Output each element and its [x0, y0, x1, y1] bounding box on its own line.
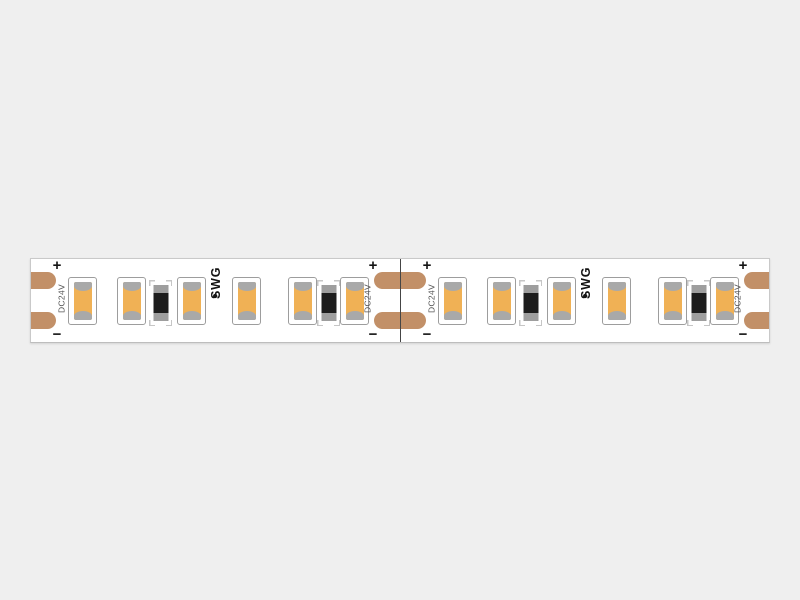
- led-electrode-top: [493, 282, 511, 291]
- voltage-label: DC24V: [733, 279, 744, 319]
- led-electrode-top: [553, 282, 571, 291]
- led-electrode-top: [608, 282, 626, 291]
- solder-pad-positive: [30, 272, 56, 289]
- minus-mark: −: [417, 328, 437, 342]
- led: [232, 277, 261, 325]
- led-strip: ●SWG●SWG+−DC24V+−DC24V+−DC24V+−DC24V: [30, 258, 770, 343]
- resistor-cap-bottom: [523, 313, 538, 321]
- led-electrode-bottom: [74, 311, 92, 320]
- brand-logo: ●SWG: [579, 269, 593, 329]
- led-electrode-top: [74, 282, 92, 291]
- cut-line: [400, 258, 401, 343]
- led-electrode-top: [183, 282, 201, 291]
- led-electrode-top: [346, 282, 364, 291]
- led-emitter: [608, 282, 626, 320]
- led-emitter: [716, 282, 734, 320]
- led-emitter: [74, 282, 92, 320]
- led-electrode-bottom: [123, 311, 141, 320]
- led: [117, 277, 146, 325]
- led-electrode-bottom: [664, 311, 682, 320]
- resistor: [149, 280, 172, 326]
- resistor-body: [153, 285, 168, 321]
- resistor: [687, 280, 710, 326]
- resistor-cap-bottom: [691, 313, 706, 321]
- led-electrode-bottom: [346, 311, 364, 320]
- voltage-label: DC24V: [427, 279, 438, 319]
- plus-mark: +: [417, 259, 437, 273]
- minus-mark: −: [363, 328, 383, 342]
- led: [547, 277, 576, 325]
- led-electrode-bottom: [294, 311, 312, 320]
- led-electrode-bottom: [553, 311, 571, 320]
- brand-text: SWG: [209, 267, 223, 299]
- led: [487, 277, 516, 325]
- led-electrode-top: [444, 282, 462, 291]
- minus-mark: −: [733, 328, 753, 342]
- led: [177, 277, 206, 325]
- resistor: [519, 280, 542, 326]
- led-electrode-top: [238, 282, 256, 291]
- brand-logo: ●SWG: [209, 269, 223, 329]
- led: [68, 277, 97, 325]
- led: [602, 277, 631, 325]
- minus-mark: −: [47, 328, 67, 342]
- resistor-cap-top: [153, 285, 168, 293]
- led-electrode-bottom: [238, 311, 256, 320]
- led-emitter: [238, 282, 256, 320]
- resistor-body: [523, 285, 538, 321]
- plus-mark: +: [363, 259, 383, 273]
- led-emitter: [183, 282, 201, 320]
- led-electrode-bottom: [183, 311, 201, 320]
- led-electrode-top: [294, 282, 312, 291]
- led-electrode-bottom: [444, 311, 462, 320]
- resistor: [317, 280, 340, 326]
- led-electrode-bottom: [493, 311, 511, 320]
- plus-mark: +: [47, 259, 67, 273]
- resistor-cap-bottom: [321, 313, 336, 321]
- product-image: ●SWG●SWG+−DC24V+−DC24V+−DC24V+−DC24V: [0, 0, 800, 600]
- resistor-body: [321, 285, 336, 321]
- led: [288, 277, 317, 325]
- plus-mark: +: [733, 259, 753, 273]
- led-emitter: [123, 282, 141, 320]
- led-emitter: [493, 282, 511, 320]
- led: [438, 277, 467, 325]
- resistor-body: [691, 285, 706, 321]
- led-emitter: [444, 282, 462, 320]
- resistor-cap-top: [691, 285, 706, 293]
- voltage-label: DC24V: [363, 279, 374, 319]
- led: [658, 277, 687, 325]
- led-emitter: [664, 282, 682, 320]
- solder-pad-positive: [744, 272, 770, 289]
- led-electrode-bottom: [716, 311, 734, 320]
- brand-text: SWG: [579, 267, 593, 299]
- led-emitter: [294, 282, 312, 320]
- led-emitter: [346, 282, 364, 320]
- voltage-label: DC24V: [57, 279, 68, 319]
- solder-pad-negative: [744, 312, 770, 329]
- led-emitter: [553, 282, 571, 320]
- resistor-cap-top: [321, 285, 336, 293]
- resistor-cap-top: [523, 285, 538, 293]
- resistor-cap-bottom: [153, 313, 168, 321]
- led-electrode-bottom: [608, 311, 626, 320]
- led-electrode-top: [664, 282, 682, 291]
- led-electrode-top: [123, 282, 141, 291]
- led-electrode-top: [716, 282, 734, 291]
